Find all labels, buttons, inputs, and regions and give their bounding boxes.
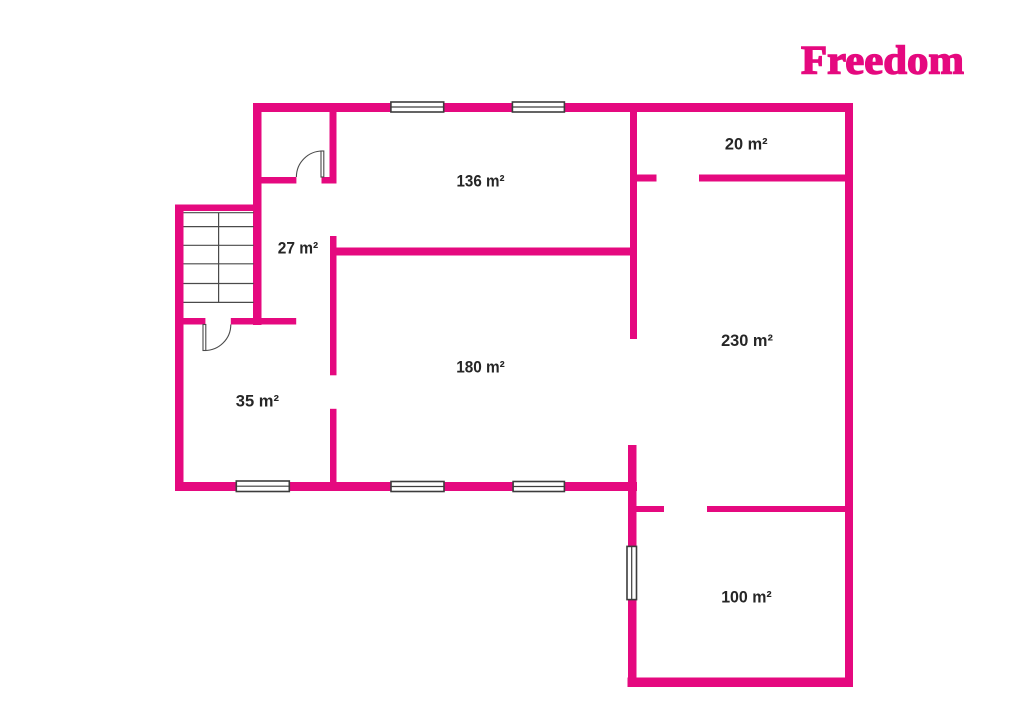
svg-text:35 m²: 35 m²: [236, 393, 280, 411]
svg-text:180 m²: 180 m²: [456, 359, 505, 377]
svg-text:136 m²: 136 m²: [457, 173, 506, 191]
svg-text:Freedom: Freedom: [801, 38, 964, 83]
svg-text:100 m²: 100 m²: [721, 589, 772, 607]
svg-text:27 m²: 27 m²: [278, 239, 319, 257]
svg-text:20 m²: 20 m²: [725, 135, 768, 153]
svg-text:230 m²: 230 m²: [721, 332, 773, 350]
